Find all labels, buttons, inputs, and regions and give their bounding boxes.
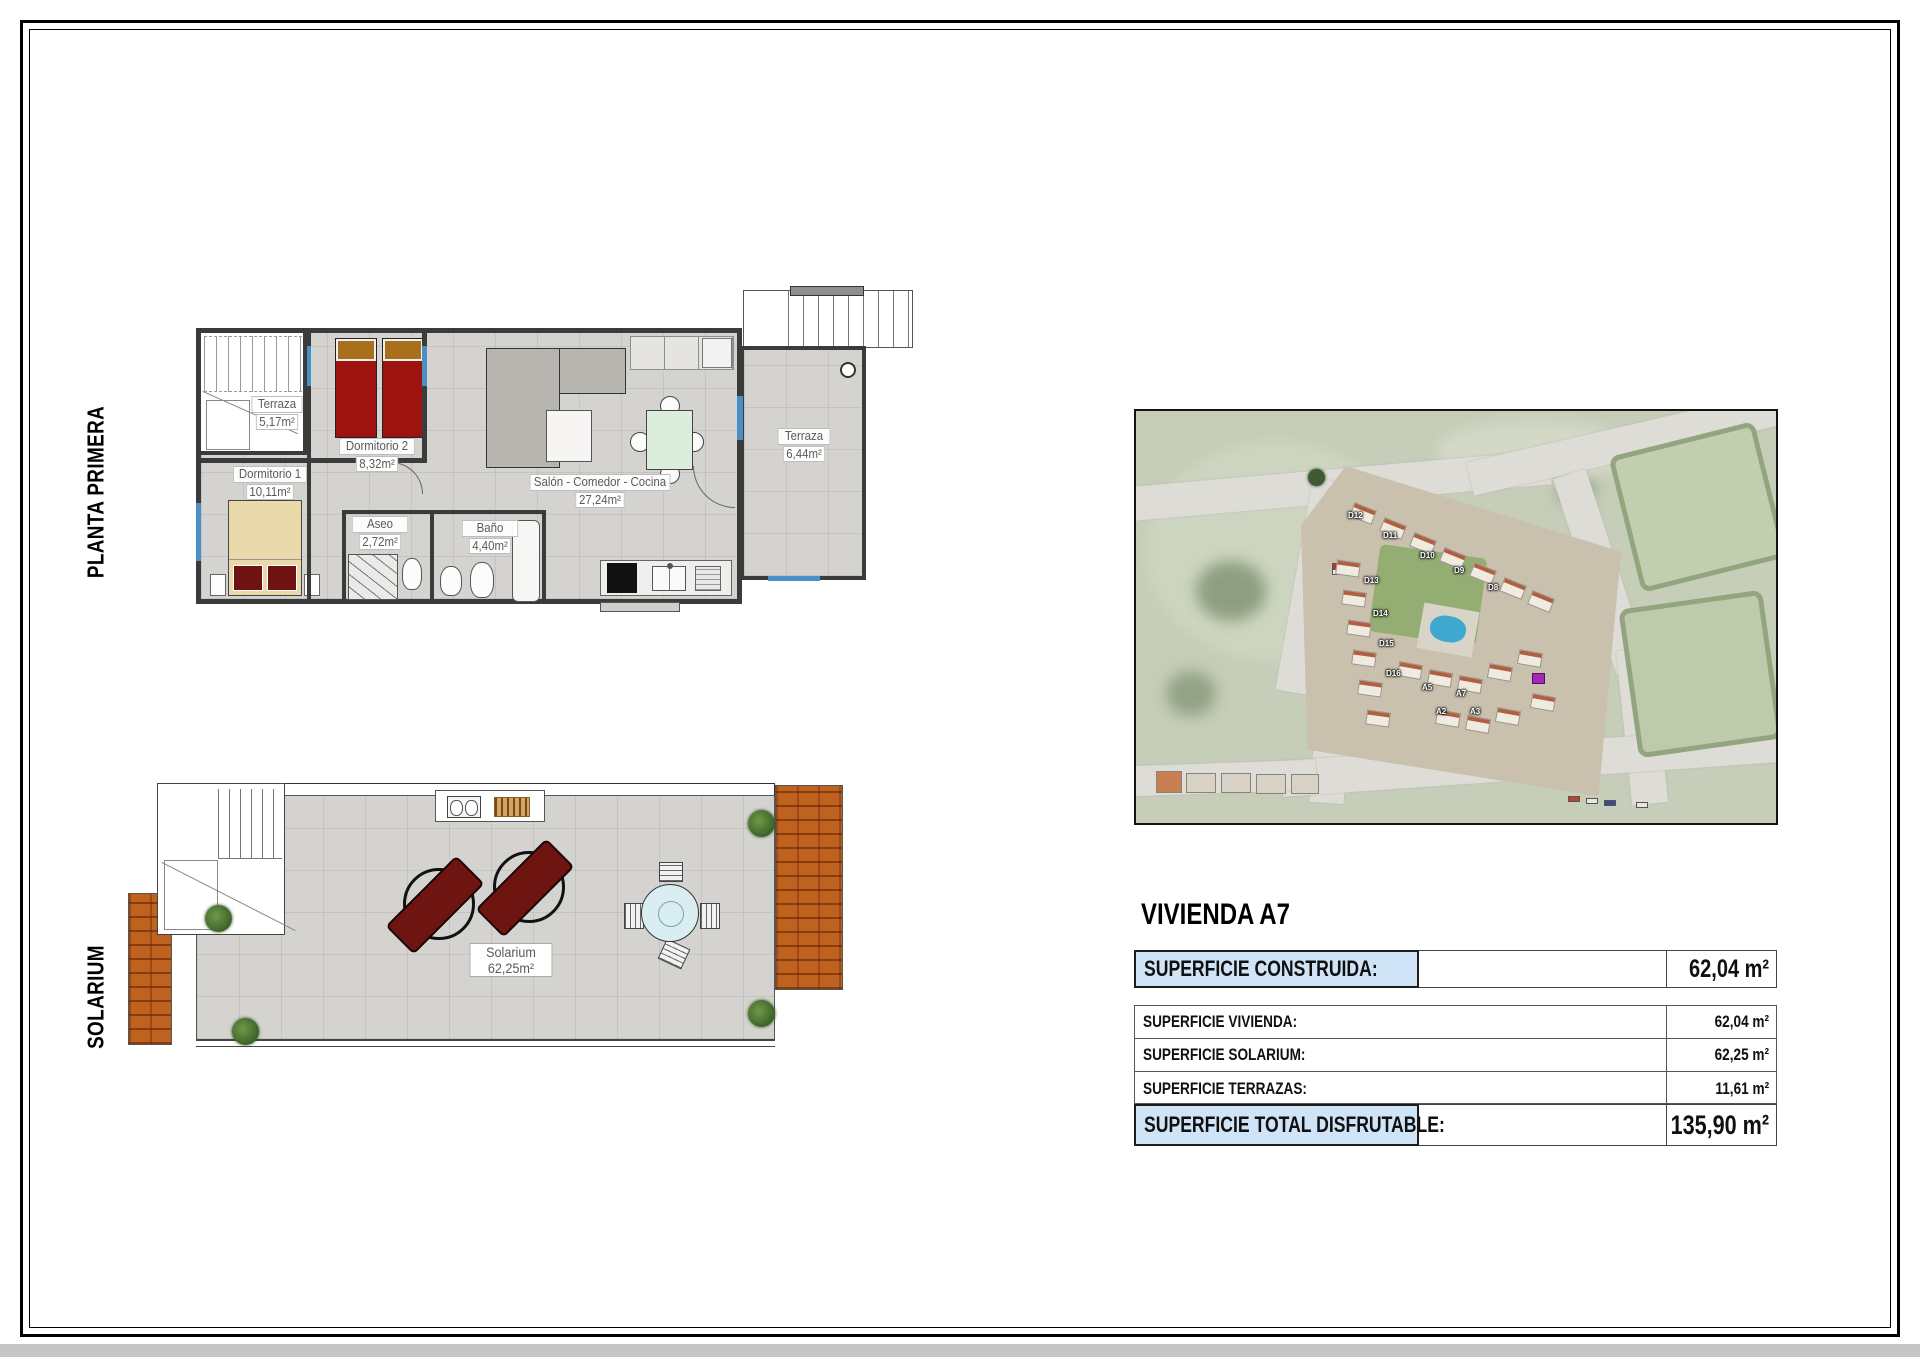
label-cell-highlight: SUPERFICIE CONSTRUIDA:	[1134, 950, 1419, 988]
room-label-dormitorio1: Dormitorio 1 10,11m²	[233, 466, 307, 500]
construida-value: 62,04 m²	[1669, 951, 1769, 987]
room-label-aseo: Aseo 2,72m²	[352, 516, 408, 550]
row-label: SUPERFICIE VIVIENDA:	[1143, 1006, 1336, 1038]
round-table-icon	[641, 884, 699, 942]
table-row: SUPERFICIE VIVIENDA: 62,04 m²	[1135, 1006, 1776, 1039]
row-value: 11,61 m²	[1702, 1072, 1769, 1105]
total-value: 135,90 m²	[1646, 1105, 1769, 1145]
car-icon	[1604, 800, 1616, 806]
building	[1341, 589, 1367, 607]
page-bottom-shadow	[0, 1344, 1920, 1357]
value-cell: 62,04 m²	[1418, 950, 1777, 988]
aerial-building-label: D13	[1364, 576, 1379, 585]
stair-steps	[204, 336, 302, 392]
shower-icon	[348, 554, 398, 600]
row-superficie-construida: 62,04 m² SUPERFICIE CONSTRUIDA:	[1134, 950, 1777, 988]
plan-sheet: PLANTA PRIMERA SOLARIUM Terraza 6,44m²	[0, 0, 1920, 1357]
toilet-icon	[402, 558, 422, 590]
room-label-dormitorio2: Dormitorio 2 8,32m²	[339, 438, 415, 472]
aerial-building-label: D11	[1383, 531, 1397, 540]
building	[1351, 649, 1377, 667]
tree-blob	[1196, 561, 1266, 621]
chair-icon	[659, 862, 683, 882]
solarium-plan: Solarium 62,25m²	[128, 783, 853, 1053]
wall	[342, 510, 346, 604]
aerial-building-label: A2	[1436, 707, 1446, 716]
floor-title-solarium: SOLARIUM	[83, 945, 110, 1049]
stair-landing	[206, 400, 250, 450]
wall	[342, 510, 546, 514]
wall	[542, 510, 546, 604]
row-superficie-total: 135,90 m² SUPERFICIE TOTAL DISFRUTABLE:	[1134, 1104, 1777, 1146]
stair-steps	[788, 291, 912, 347]
bed-icon	[382, 338, 424, 438]
deck-outline	[196, 1046, 775, 1047]
window-marker	[307, 346, 311, 386]
green-field	[1618, 590, 1778, 759]
floor-plan-planta-primera: Terraza 6,44m²	[190, 288, 920, 623]
building	[1221, 773, 1251, 793]
toilet-icon	[470, 562, 494, 598]
car-icon	[1636, 802, 1648, 808]
surface-detail-table: SUPERFICIE VIVIENDA: 62,04 m² SUPERFICIE…	[1134, 1005, 1777, 1104]
plant-icon	[748, 1000, 775, 1027]
total-label: SUPERFICIE TOTAL DISFRUTABLE:	[1144, 1106, 1520, 1144]
row-value: 62,04 m²	[1701, 1006, 1769, 1038]
bbq-counter-icon	[435, 790, 545, 822]
double-beds-icon	[335, 338, 424, 438]
palm-tree-icon	[1308, 469, 1325, 486]
aerial-building-label: D12	[1348, 511, 1363, 520]
table-row: SUPERFICIE SOLARIUM: 62,25 m²	[1135, 1039, 1776, 1072]
washbasin-icon	[440, 566, 462, 596]
building	[1291, 774, 1319, 794]
building	[1156, 771, 1182, 793]
building	[1335, 559, 1361, 577]
room-label-terraza-right: Terraza 6,44m²	[778, 428, 831, 462]
aerial-photo: D12 D11 D10 D9 D8 D13 D14 D15 D16 A5 A7 …	[1134, 409, 1778, 825]
aerial-building-label: A5	[1422, 683, 1432, 692]
plant-icon	[205, 905, 232, 932]
building	[1357, 679, 1383, 697]
sink-icon	[652, 566, 686, 591]
bed-icon	[228, 500, 302, 596]
aerial-building-label: A3	[1470, 707, 1480, 716]
fridge-icon	[702, 338, 732, 368]
stair-steps	[218, 789, 282, 859]
building	[1256, 774, 1286, 794]
stair-landing-bar	[790, 286, 864, 296]
exterior-stairs-icon	[743, 290, 913, 348]
pillow-icon	[383, 339, 423, 361]
bbq-grill-icon	[494, 797, 530, 817]
aerial-building-label: D15	[1379, 639, 1394, 648]
nightstand-icon	[210, 574, 226, 596]
stove-icon	[607, 563, 637, 593]
room-label-salon: Salón - Comedor - Cocina 27,24m²	[530, 474, 671, 508]
bed-sheet-line	[229, 559, 301, 560]
column-icon	[840, 362, 856, 378]
room-terraza-right: Terraza 6,44m²	[740, 346, 866, 580]
car-icon	[1568, 796, 1580, 802]
coffee-table-icon	[546, 410, 592, 462]
window-marker	[768, 576, 820, 581]
threshold-step	[600, 602, 680, 612]
pillow-icon	[233, 565, 263, 591]
floor-title-planta-primera: PLANTA PRIMERA	[83, 406, 110, 578]
aerial-building-label: D14	[1373, 609, 1388, 618]
room-label-solarium: Solarium 62,25m²	[470, 943, 553, 977]
building	[1346, 619, 1372, 637]
row-value: 62,25 m²	[1701, 1039, 1769, 1071]
aerial-building-label: D16	[1386, 669, 1401, 678]
door-marker	[737, 396, 743, 440]
dish-rack-icon	[695, 566, 721, 591]
car-icon	[1586, 798, 1598, 804]
construida-label: SUPERFICIE CONSTRUIDA:	[1144, 952, 1436, 986]
bed-icon	[335, 338, 377, 438]
room-terraza-stair	[201, 333, 307, 455]
wall	[307, 458, 311, 604]
aerial-building-label: D9	[1454, 566, 1464, 575]
building	[1365, 709, 1391, 727]
chair-icon	[700, 903, 720, 929]
plant-icon	[232, 1018, 259, 1045]
window-marker	[422, 346, 427, 386]
row-label: SUPERFICIE TERRAZAS:	[1143, 1072, 1348, 1105]
pillow-icon	[267, 565, 297, 591]
room-label-bano: Baño 4,40m²	[462, 520, 518, 554]
pillow-icon	[336, 339, 376, 361]
cell-divider	[1666, 951, 1667, 987]
window-marker	[196, 503, 201, 561]
building	[1186, 773, 1216, 793]
unit-a7-highlight	[1532, 673, 1545, 684]
roof-tiles-right	[775, 785, 843, 990]
aerial-building-label: D8	[1488, 583, 1498, 592]
table-row: SUPERFICIE TERRAZAS: 11,61 m²	[1135, 1072, 1776, 1105]
aerial-building-label: D10	[1420, 551, 1435, 560]
plant-icon	[748, 810, 775, 837]
tree-blob	[1166, 671, 1216, 716]
label-cell-highlight: SUPERFICIE TOTAL DISFRUTABLE:	[1134, 1104, 1419, 1146]
row-label: SUPERFICIE SOLARIUM:	[1143, 1039, 1346, 1071]
aerial-building-label: A7	[1456, 689, 1466, 698]
sink-icon	[447, 796, 481, 818]
wall	[430, 510, 434, 604]
room-label-terraza: Terraza 5,17m²	[251, 396, 302, 430]
dining-table-icon	[646, 410, 693, 470]
page-title: VIVIENDA A7	[1141, 898, 1327, 932]
